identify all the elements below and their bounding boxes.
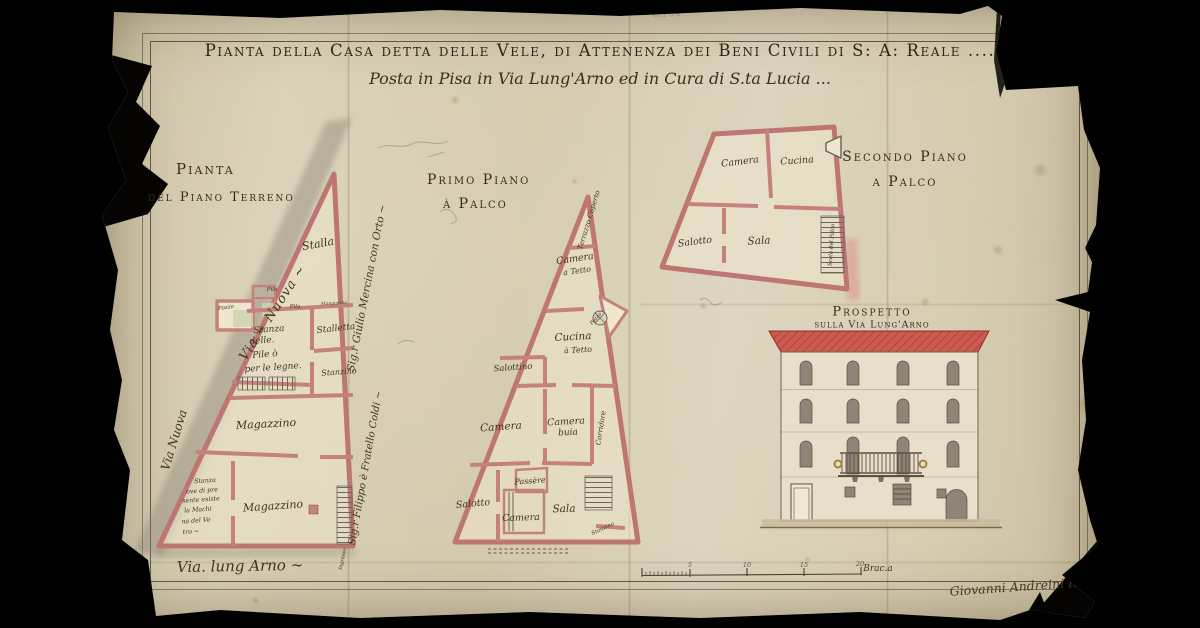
second-floor-plan [662, 127, 847, 289]
scale-tick-label-10: 10 [743, 561, 751, 569]
document-subtitle: Posta in Pisa in Via Lung'Arno ed in Cur… [120, 69, 1080, 88]
elevation-drawing [760, 331, 1002, 528]
ground-plan-heading-2: del Piano Terreno [148, 190, 295, 205]
room-label-cucina-tetto-1: Cucina [554, 330, 592, 344]
second-plan-heading-2: a Palco [873, 174, 938, 190]
room-label-sala-second: Sala [747, 234, 771, 247]
scanned-plan-document: Pianta della Casa detta delle Vele, di A… [0, 0, 1200, 628]
room-label-stanza-pile-2: delle. [249, 335, 275, 347]
room-label-cucina-second: Cucina [780, 154, 814, 167]
room-label-stanza-macchina-6: tro ~ [182, 528, 199, 536]
scale-unit-label: Brac.a [863, 564, 893, 574]
scale-bar [642, 567, 862, 577]
room-label-stanza-pile-3: Pile ò [252, 349, 278, 361]
room-label-pila-b: Pila [290, 304, 301, 310]
pencil-note: 6.104 [652, 8, 681, 20]
room-label-camera-buia-2: buia [558, 427, 578, 438]
room-label-pila-a: Pila [267, 287, 278, 293]
ground-plan-heading-1: Pianta [176, 160, 235, 178]
street-label-via-lungarno: Via. lung Arno ~ [177, 556, 304, 576]
ground-strip [762, 519, 1000, 527]
parchment-sheet: Pianta della Casa detta delle Vele, di A… [100, 0, 1105, 628]
room-label-camera-buia-1: Camera [547, 416, 585, 429]
room-label-stanza-pile-1: Stanza [253, 324, 285, 336]
stain [1009, 47, 1035, 73]
document-title: Pianta della Casa detta delle Vele, di A… [120, 41, 1080, 60]
elevation-heading-1: Prospetto [832, 305, 911, 320]
room-label-cucina-tetto-2: à Tetto [564, 345, 592, 355]
elevation-heading-2: sulla Via Lung'Arno [814, 320, 929, 331]
room-label-camera-b-first: Camera [502, 512, 540, 524]
scale-tick-label-5: 5 [688, 561, 692, 569]
first-plan-heading-1: Primo Piano [427, 172, 530, 188]
first-plan-heading-2: à Palco [443, 196, 508, 212]
scale-tick-label-15: 15 [800, 561, 808, 569]
second-plan-heading-1: Secondo Piano [842, 149, 968, 165]
room-label-sala-first: Sala [552, 503, 575, 516]
